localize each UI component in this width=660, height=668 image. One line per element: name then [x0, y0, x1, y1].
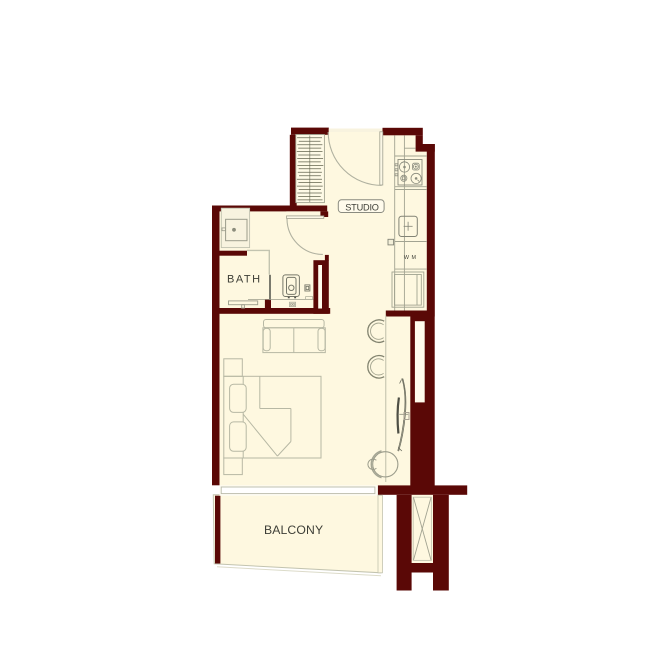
- svg-text:BALCONY: BALCONY: [264, 523, 323, 537]
- svg-text:W M: W M: [404, 255, 417, 261]
- svg-text:BATH: BATH: [227, 274, 262, 286]
- svg-text:STUDIO: STUDIO: [345, 202, 379, 212]
